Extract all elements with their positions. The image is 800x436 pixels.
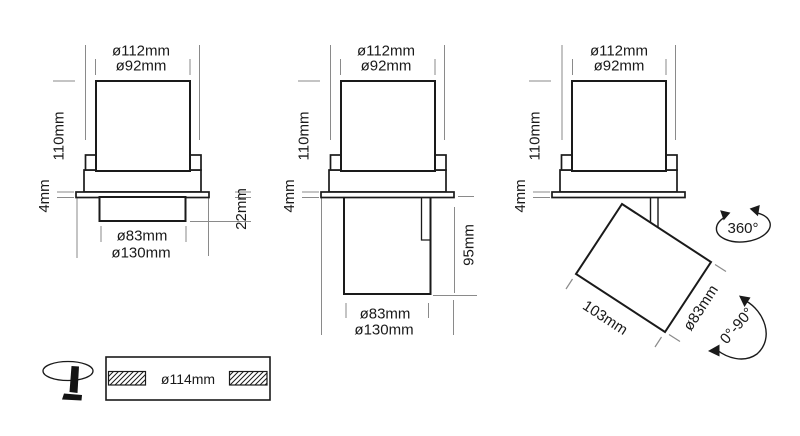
dim-drop-length: 95mm (461, 224, 478, 266)
fixture-body-recessed (76, 81, 209, 198)
fixture-body-extended (321, 81, 454, 198)
fixture-body-tilted (552, 81, 685, 198)
view-extended: ø112mm ø92mm 110mm 4mm 95mm ø83mm ø130mm (281, 43, 478, 339)
dim-body-height: 110mm (527, 112, 544, 161)
tilt-arrowhead-bottom (708, 345, 720, 357)
dim-dia-flange: ø130mm (354, 322, 413, 339)
ceiling-cutout-diagram: ø114mm (43, 357, 270, 401)
fixture-silhouette-base-icon (62, 394, 82, 401)
dim-rotation: 360° (727, 220, 758, 237)
dim-flange-thickness: 4mm (281, 179, 298, 212)
extended-cylinder (344, 197, 431, 294)
ceiling-hatch-right (230, 372, 268, 386)
dim-flange-thickness: 4mm (36, 179, 53, 212)
rotation-arrowhead-right (749, 205, 761, 217)
dim-dia-inner: ø92mm (116, 58, 167, 75)
view-tilted: ø112mm ø92mm 110mm 4mm 103mm ø83mm 360° … (512, 43, 772, 359)
dim-dia-body: ø83mm (360, 306, 411, 323)
dim-dia-flange: ø130mm (111, 245, 170, 262)
dim-dia-inner: ø92mm (361, 58, 412, 75)
dim-recess-depth: 22mm (233, 188, 250, 230)
spotlight-dimension-drawing: ø112mm ø92mm 110mm 4mm 22mm ø83mm ø130mm (0, 0, 800, 436)
ceiling-hatch-left (109, 372, 146, 386)
dim-tilt-range: 0°-90° (717, 305, 757, 348)
drawing-svg: ø112mm ø92mm 110mm 4mm 22mm ø83mm ø130mm (0, 0, 800, 436)
dim-dia-body: ø83mm (117, 228, 168, 245)
dim-flange-thickness: 4mm (512, 179, 529, 212)
dim-body-height: 110mm (296, 112, 313, 161)
recessed-cylinder (100, 197, 186, 221)
fixture-silhouette-icon (70, 366, 80, 393)
rotate-ellipse-icon (43, 362, 93, 381)
dim-dia-inner: ø92mm (594, 58, 645, 75)
view-recessed: ø112mm ø92mm 110mm 4mm 22mm ø83mm ø130mm (36, 43, 251, 262)
dim-body-height: 110mm (51, 112, 68, 161)
dim-cutout-dia: ø114mm (161, 371, 215, 387)
